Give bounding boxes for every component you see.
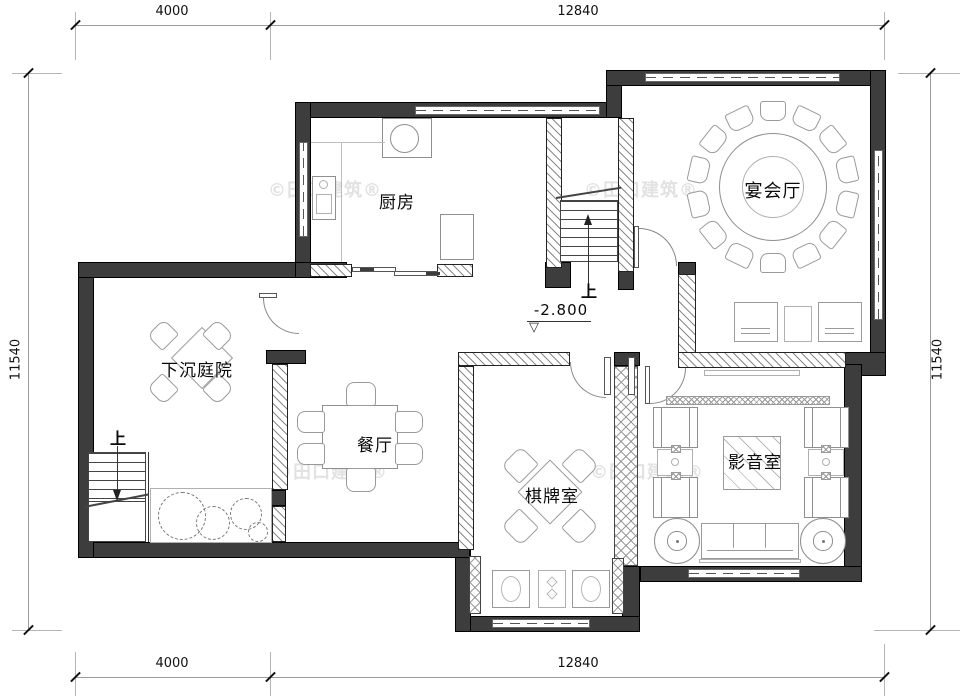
armchair (572, 570, 610, 608)
connector (821, 445, 831, 453)
connector (821, 472, 831, 480)
door-leaf (604, 357, 611, 395)
recliner (804, 407, 849, 448)
kitchen-counter-line (341, 142, 342, 262)
dimension-line (75, 677, 884, 678)
x-wall (612, 558, 624, 614)
sliding-door (352, 267, 396, 272)
dimension-label: 4000 (132, 656, 212, 671)
door-arc (263, 298, 299, 334)
table-decor (822, 458, 830, 466)
sliding-door-panel (360, 268, 374, 271)
wall (78, 262, 300, 278)
hatched-wall (458, 352, 570, 366)
side-table (784, 306, 812, 342)
extension-line (12, 630, 62, 631)
appliance-drum (390, 124, 419, 153)
stair-arrow (588, 224, 589, 286)
chair (147, 319, 180, 352)
hatched-wall (310, 264, 352, 277)
stair-arrow (117, 446, 118, 492)
extension-line (270, 12, 271, 60)
dimension-label: 11540 (9, 328, 24, 392)
window (874, 150, 883, 320)
door-leaf (628, 357, 635, 395)
dimension-label: 12840 (530, 4, 626, 19)
extension-line (884, 644, 885, 696)
kitchen-counter-line (311, 142, 385, 143)
sofa (701, 523, 799, 559)
banquet-chair (698, 218, 730, 251)
projection-screen (704, 370, 800, 376)
wall (844, 364, 862, 582)
window (492, 619, 590, 628)
connector (671, 445, 681, 453)
banquet-chair (790, 241, 822, 270)
banquet-chair (760, 101, 786, 121)
hatched-wall (678, 274, 696, 354)
fridge (440, 214, 474, 260)
speaker (800, 518, 846, 564)
chair (297, 443, 325, 465)
banquet-chair (724, 241, 756, 270)
stair-arrow-head (113, 490, 121, 501)
dimension-label: 4000 (132, 4, 212, 19)
seat (734, 302, 778, 342)
up-label: 上 (106, 425, 130, 449)
seat (818, 302, 862, 342)
up-label: 上 (577, 278, 601, 302)
room-label-dining-room: 餐厅 (340, 431, 410, 456)
dimension-label: 11540 (931, 328, 946, 392)
recliner (804, 477, 849, 518)
hatched-wall (437, 264, 473, 277)
banquet-chair (724, 104, 756, 133)
stairs-center (560, 200, 618, 262)
hatched-wall (678, 352, 846, 368)
hatched-wall (458, 366, 474, 550)
hatched-wall (618, 118, 634, 272)
dimension-line (75, 25, 884, 26)
banquet-chair (834, 155, 859, 185)
chair (395, 411, 423, 433)
recliner (653, 477, 698, 518)
banquet-chair (698, 123, 730, 156)
wall (78, 542, 470, 558)
hatched-wall (272, 506, 286, 542)
sink-basin (316, 194, 332, 214)
faucet (319, 180, 328, 189)
room-label-media-room: 影音室 (700, 448, 810, 473)
banquet-chair (790, 104, 822, 133)
chair (561, 508, 599, 546)
wall (614, 352, 640, 366)
banquet-chair (816, 123, 848, 156)
sliding-door-panel (426, 272, 440, 275)
hatched-wall (272, 364, 288, 490)
curtain-band (666, 396, 830, 405)
speaker (654, 518, 700, 564)
banquet-chair (816, 218, 848, 251)
room-label-chess-room: 棋牌室 (497, 482, 607, 507)
window (645, 73, 840, 82)
stair-railing (148, 452, 149, 542)
room-label-kitchen: 厨房 (362, 188, 432, 213)
room-label-sunken-courtyard: 下沉庭院 (127, 356, 267, 381)
banquet-chair (686, 189, 711, 219)
room-label-banquet-hall: 宴会厅 (723, 177, 823, 203)
elevation-label: -2.800 (521, 301, 601, 319)
x-wall (469, 556, 481, 614)
dimension-line (28, 73, 29, 630)
armchair (492, 570, 530, 608)
door-arc (639, 228, 677, 266)
window (415, 106, 600, 115)
door-arc (570, 362, 606, 398)
tree (196, 506, 230, 540)
stair-arrow-head (584, 214, 592, 225)
table-decor (671, 458, 679, 466)
extension-line (75, 12, 76, 60)
banquet-chair (834, 189, 859, 219)
stair-landing (88, 501, 146, 542)
dimension-label: 12840 (530, 656, 626, 671)
chair (297, 411, 325, 433)
window (299, 142, 308, 237)
tree (248, 522, 268, 542)
recliner (653, 407, 698, 448)
extension-line (884, 12, 885, 60)
banquet-chair (686, 155, 711, 185)
extension-line (874, 630, 960, 631)
elevation-triangle-icon: ▽ (529, 320, 539, 335)
chair (346, 382, 376, 406)
chair (501, 508, 539, 546)
sofa-base (699, 559, 801, 563)
extension-line (12, 73, 62, 74)
x-wall (614, 366, 638, 566)
floor-plan: ©田口建筑® ©田口建筑® ©田口建筑® ©田口建筑® (0, 0, 960, 700)
connector (671, 472, 681, 480)
wall (266, 350, 306, 364)
banquet-chair (760, 253, 786, 273)
wall (270, 490, 286, 506)
window (688, 569, 800, 578)
chair (346, 468, 376, 492)
